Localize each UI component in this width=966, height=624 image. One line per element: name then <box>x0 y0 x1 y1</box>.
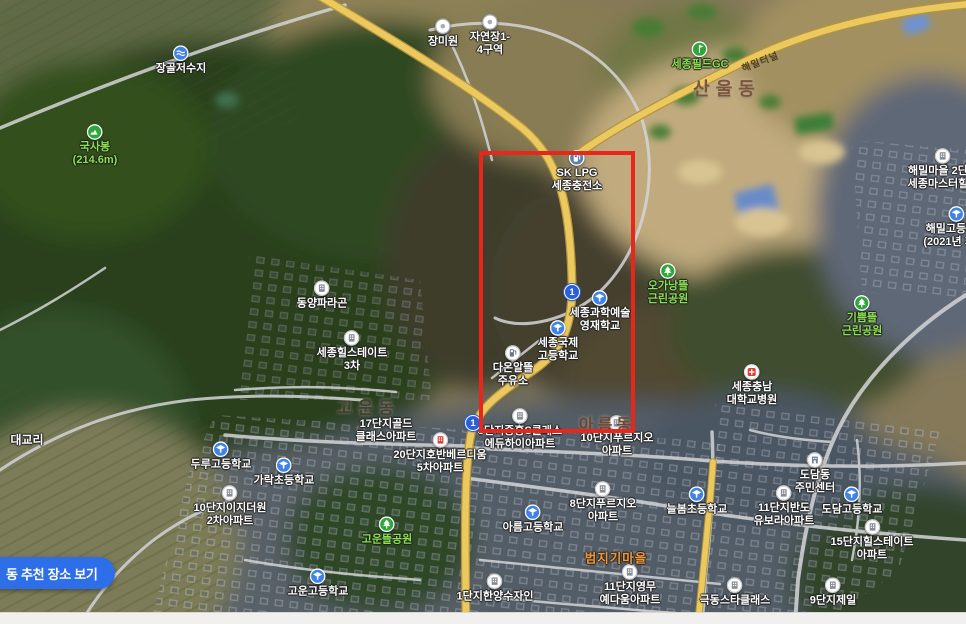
road-label-haemil-tunnel: 해밀터널 <box>739 47 780 74</box>
apt-icon <box>935 148 951 164</box>
goun-high-school-marker[interactable]: 고운고등학교 <box>288 568 349 598</box>
neulbom-elementary-marker[interactable]: 늘봄초등학교 <box>667 486 728 516</box>
gounteul-park-marker[interactable]: 고운뜰공원 <box>362 516 413 546</box>
map-label: 11단지영무예다움아파트 <box>600 581 661 606</box>
map-label: 고운뜰공원 <box>362 533 413 546</box>
map-label: 자연장1-4구역 <box>470 31 510 56</box>
apt-icon <box>314 280 330 296</box>
hoban-5cha-apt-marker[interactable]: 20단지호반베르디움5차아파트 <box>393 432 486 474</box>
school-icon <box>276 457 292 473</box>
map-label: 해밀마을 2단지세종마스터힐스 <box>908 165 966 190</box>
school-icon <box>525 504 541 520</box>
map-label: 극동스타클래스 <box>700 594 771 607</box>
page-bottom-strip <box>0 612 966 624</box>
recommend-places-button[interactable]: 동 추천 장소 보기 <box>0 557 115 589</box>
areum-high-school-marker[interactable]: 아름고등학교 <box>503 504 564 534</box>
map-label: 20단지호반베르디움5차아파트 <box>393 449 486 474</box>
park-icon <box>379 516 395 532</box>
map-label: 세종힐스테이트3차 <box>317 347 388 372</box>
place-label-daegyo-ri: 대교리 <box>10 434 43 447</box>
prugio-8-apt-marker[interactable]: 8단지푸르지오아파트 <box>570 481 637 523</box>
apt-icon <box>776 485 792 501</box>
geukdong-star-apt-marker[interactable]: 극동스타클래스 <box>700 577 771 607</box>
hillstate-15-apt-marker[interactable]: 15단지힐스테이트아파트 <box>830 519 913 561</box>
dodam-high-school-marker[interactable]: 도담고등학교 <box>822 486 883 516</box>
map-label: 동양파라곤 <box>297 297 348 310</box>
map-label: 도담고등학교 <box>822 503 883 516</box>
hanyang-sujain-apt-marker[interactable]: 1단지한양수자인 <box>457 573 534 603</box>
haemil-high-school-marker[interactable]: 해밀고등학교(2021년 개교) <box>923 206 966 248</box>
school-icon <box>213 441 229 457</box>
apt-icon <box>487 573 503 589</box>
bando-uvora-apt-marker[interactable]: 11단지반도유보라아파트 <box>754 485 815 527</box>
map-label: 해밀고등학교(2021년 개교) <box>923 223 966 248</box>
village-label-beomjigi-maeul: 범지기마을 <box>585 548 648 567</box>
poi-icon <box>482 14 498 30</box>
map-label: 늘봄초등학교 <box>667 503 728 516</box>
map-label: 오가낭뜰근린공원 <box>648 280 688 305</box>
ezone-2cha-apt-marker[interactable]: 10단지이지더원2차아파트 <box>194 485 267 527</box>
natural-burial-4-marker[interactable]: 자연장1-4구역 <box>470 14 510 56</box>
duru-high-school-marker[interactable]: 두루고등학교 <box>191 441 252 471</box>
map-viewport: 장골저수지국사봉(214.6m)장미원자연장1-4구역세종필드GCSK LPG세… <box>0 0 966 624</box>
map-label: 두루고등학교 <box>191 458 252 471</box>
map-label: 기쁨뜰근린공원 <box>842 312 882 337</box>
golf-icon <box>692 41 708 57</box>
district-label-sanul-dong: 산울동 <box>693 75 761 101</box>
guksabong-peak-marker[interactable]: 국사봉(214.6m) <box>73 124 118 166</box>
map-label: 장미원 <box>428 35 458 48</box>
sejong-hillstate-3-marker[interactable]: 세종힐스테이트3차 <box>317 330 388 372</box>
haemil-maeul-2danji-marker[interactable]: 해밀마을 2단지세종마스터힐스 <box>908 148 966 190</box>
office-icon <box>807 452 823 468</box>
map-label: 국사봉(214.6m) <box>73 141 118 166</box>
map-label: 11단지반도유보라아파트 <box>754 502 815 527</box>
apt-icon <box>727 577 743 593</box>
school-icon <box>310 568 326 584</box>
apt-icon <box>864 519 880 535</box>
apt-icon <box>595 481 611 497</box>
garak-elementary-marker[interactable]: 가락초등학교 <box>254 457 315 487</box>
gippeumtteul-park-marker[interactable]: 기쁨뜰근린공원 <box>842 295 882 337</box>
map-label: 아름고등학교 <box>503 521 564 534</box>
school-icon <box>948 206 964 222</box>
map-label: 1단지한양수자인 <box>457 590 534 603</box>
map-label: 9단지제일 <box>810 594 857 607</box>
jangmiwon-marker[interactable]: 장미원 <box>428 18 458 48</box>
school-icon <box>844 486 860 502</box>
highlight-rectangle <box>479 151 635 433</box>
jeil-9-apt-marker[interactable]: 9단지제일 <box>810 577 857 607</box>
poi-icon <box>435 18 451 34</box>
district-label-goun-dong: 고운동 <box>337 394 399 419</box>
park-icon <box>660 263 676 279</box>
apt-icon <box>344 330 360 346</box>
map-label: 15단지힐스테이트아파트 <box>830 536 913 561</box>
hospital-icon <box>744 364 760 380</box>
map-label: 고운고등학교 <box>288 585 349 598</box>
park-icon <box>854 295 870 311</box>
map-label: 8단지푸르지오아파트 <box>570 498 637 523</box>
mountain-icon <box>87 124 103 140</box>
sejong-field-gc-marker[interactable]: 세종필드GC <box>672 41 729 71</box>
map-label: 10단지이지더원2차아파트 <box>194 502 267 527</box>
apt-icon <box>825 577 841 593</box>
yeongmu-yedaum-apt-marker[interactable]: 11단지영무예다움아파트 <box>600 564 661 606</box>
water-icon <box>173 45 189 61</box>
school-icon <box>689 486 705 502</box>
janggol-reservoir-marker[interactable]: 장골저수지 <box>156 45 207 75</box>
map-label: 장골저수지 <box>156 62 207 75</box>
apt-icon <box>222 485 238 501</box>
map-label: 세종필드GC <box>672 58 729 71</box>
dongyang-paragon-marker[interactable]: 동양파라곤 <box>297 280 348 310</box>
ogananggtteul-park-marker[interactable]: 오가낭뜰근린공원 <box>648 263 688 305</box>
map-label: 세종충남대학교병원 <box>727 381 778 406</box>
chungnam-univ-hosp-marker[interactable]: 세종충남대학교병원 <box>727 364 778 406</box>
apt-red-icon <box>432 432 448 448</box>
map-label: 10단지푸르지오아파트 <box>581 432 654 457</box>
